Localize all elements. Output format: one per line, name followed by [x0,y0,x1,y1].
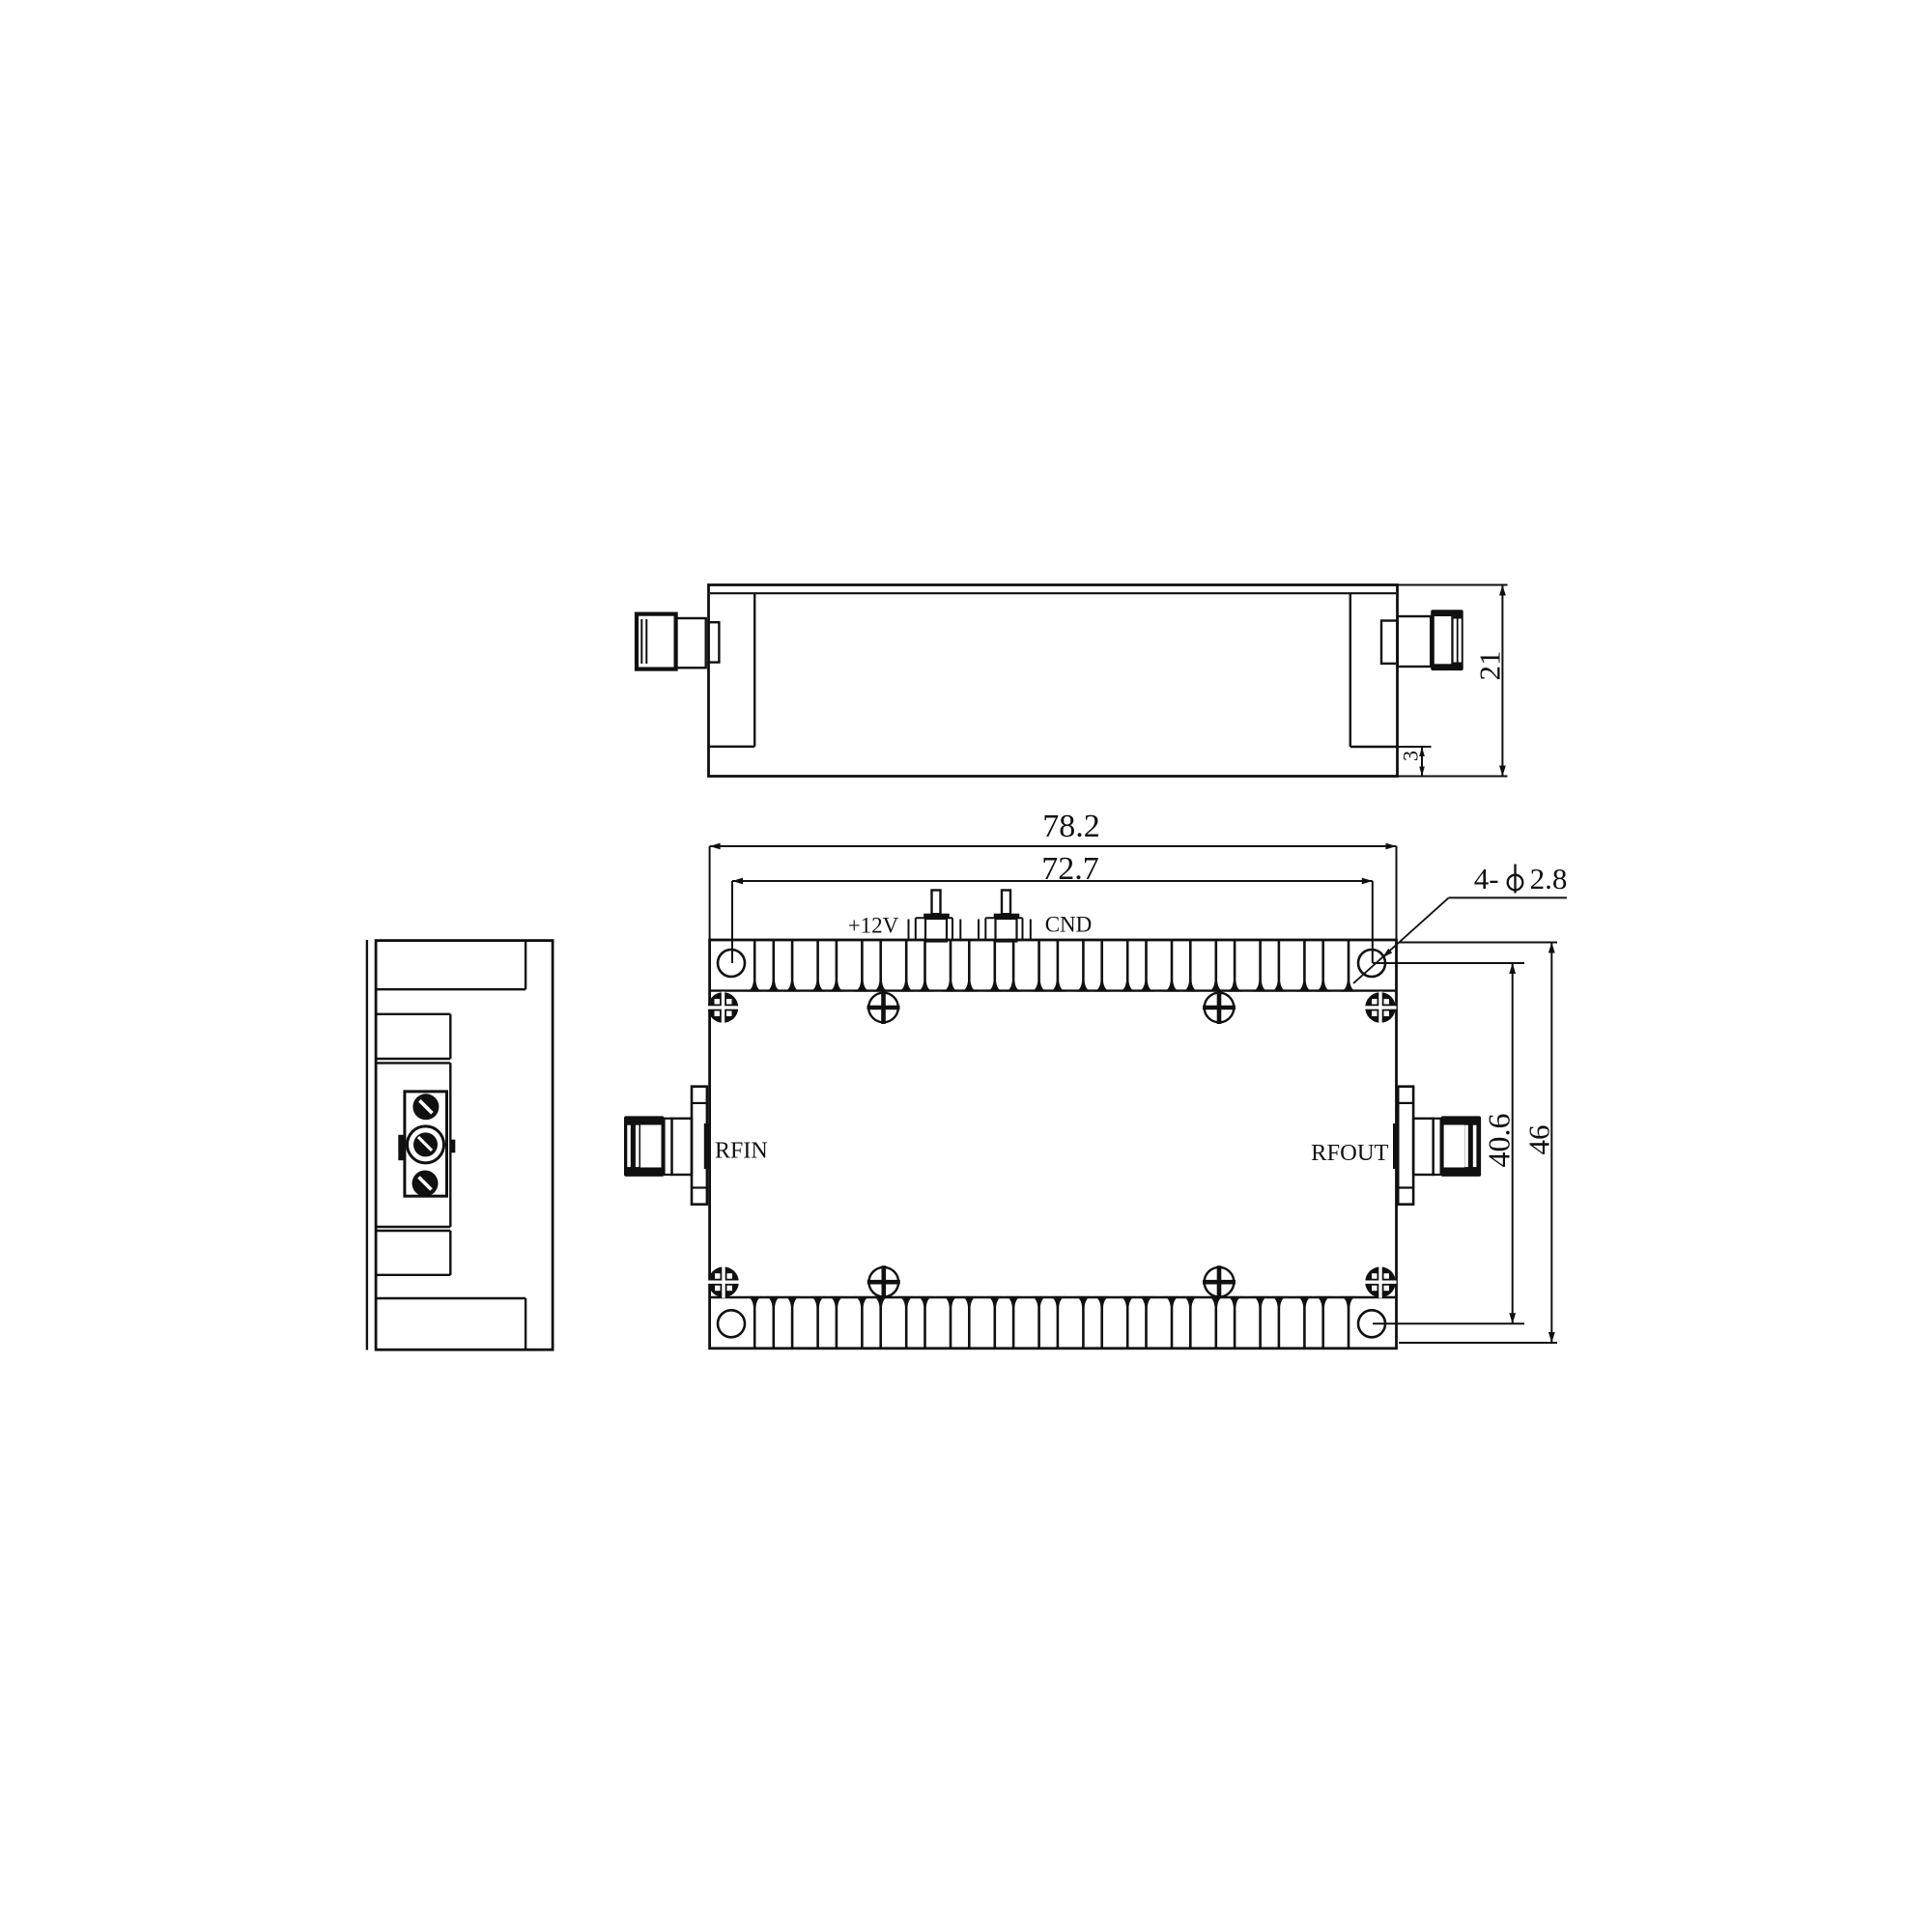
svg-text:RFOUT: RFOUT [1311,1140,1388,1166]
svg-text:78.2: 78.2 [1042,809,1100,844]
svg-text:72.7: 72.7 [1041,851,1099,887]
svg-text:2.8: 2.8 [1530,862,1568,895]
svg-text:3: 3 [1399,751,1423,761]
svg-text:40.6: 40.6 [1482,1114,1517,1168]
svg-text:RFIN: RFIN [715,1139,768,1164]
svg-text:21: 21 [1473,651,1507,681]
svg-text:46: 46 [1521,1125,1555,1155]
svg-text:4-: 4- [1474,862,1499,895]
svg-text:+12V: +12V [848,914,899,938]
svg-text:CND: CND [1045,913,1093,937]
